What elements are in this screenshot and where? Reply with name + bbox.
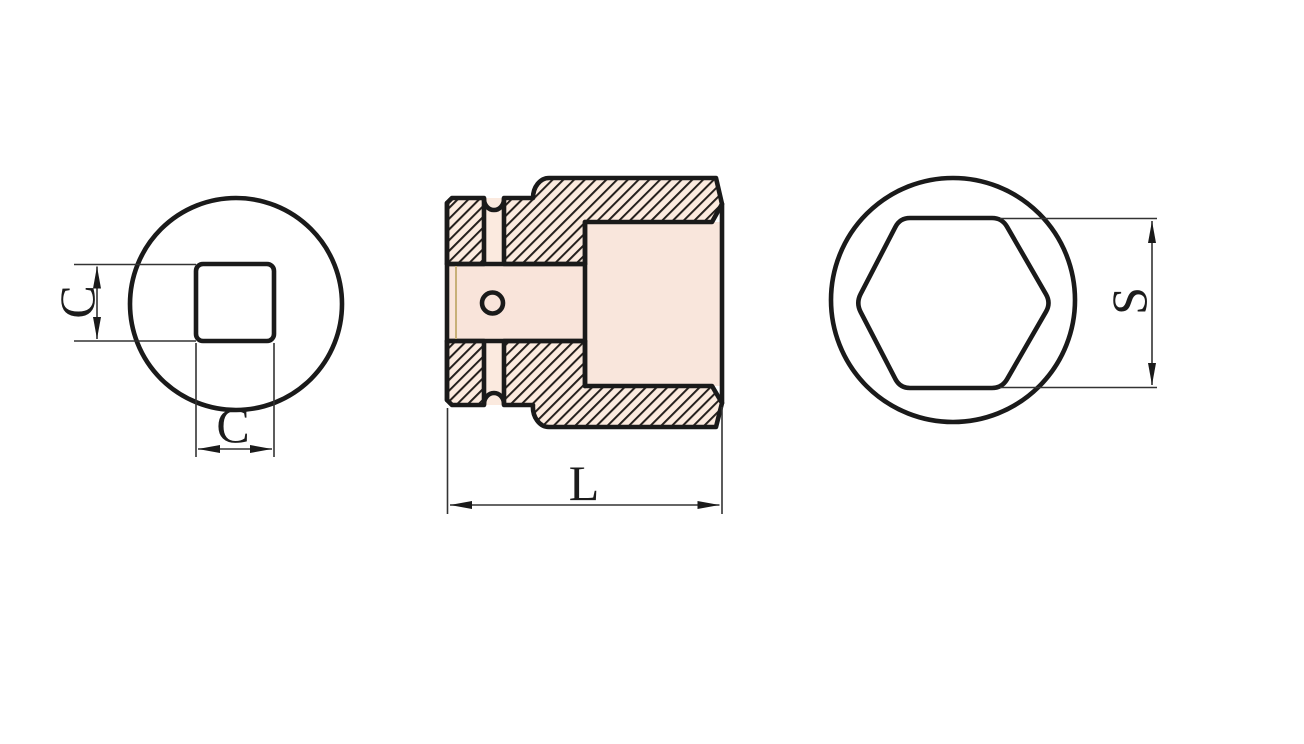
dim-label-c-width: C: [216, 397, 249, 453]
hex-cavity: [585, 222, 722, 386]
dim-label-c-height: C: [49, 285, 105, 318]
square-hole-channel: [447, 264, 585, 341]
dim-label-s: S: [1101, 287, 1157, 315]
section-upper-left-wall: [447, 198, 484, 264]
technical-drawing-page: C C L: [0, 0, 1304, 744]
socket-three-view-drawing: C C L: [0, 0, 1304, 744]
section-lower-left-wall: [447, 341, 484, 405]
dim-label-l: L: [569, 455, 600, 511]
